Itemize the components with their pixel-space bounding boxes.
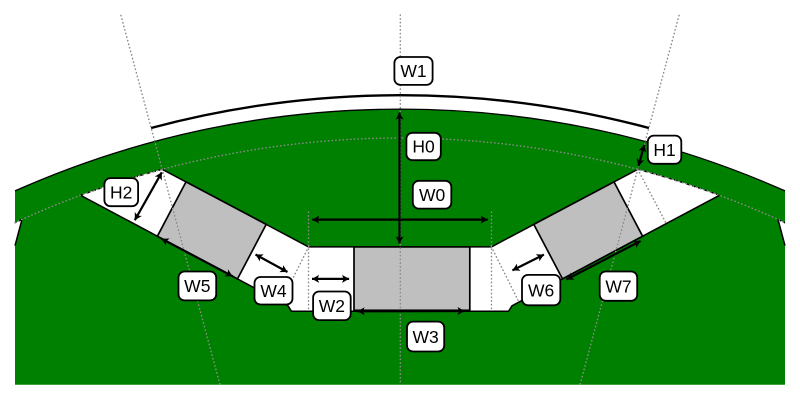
svg-text:W3: W3 bbox=[412, 327, 438, 347]
svg-text:H2: H2 bbox=[110, 182, 132, 202]
svg-text:H0: H0 bbox=[412, 137, 435, 157]
svg-text:W5: W5 bbox=[184, 276, 210, 296]
svg-text:W2: W2 bbox=[319, 296, 345, 316]
svg-text:W1: W1 bbox=[400, 61, 426, 81]
svg-text:W7: W7 bbox=[605, 276, 631, 296]
svg-text:W0: W0 bbox=[419, 185, 446, 205]
svg-text:W6: W6 bbox=[528, 280, 554, 300]
svg-text:H1: H1 bbox=[653, 140, 675, 160]
svg-text:W4: W4 bbox=[260, 281, 287, 301]
